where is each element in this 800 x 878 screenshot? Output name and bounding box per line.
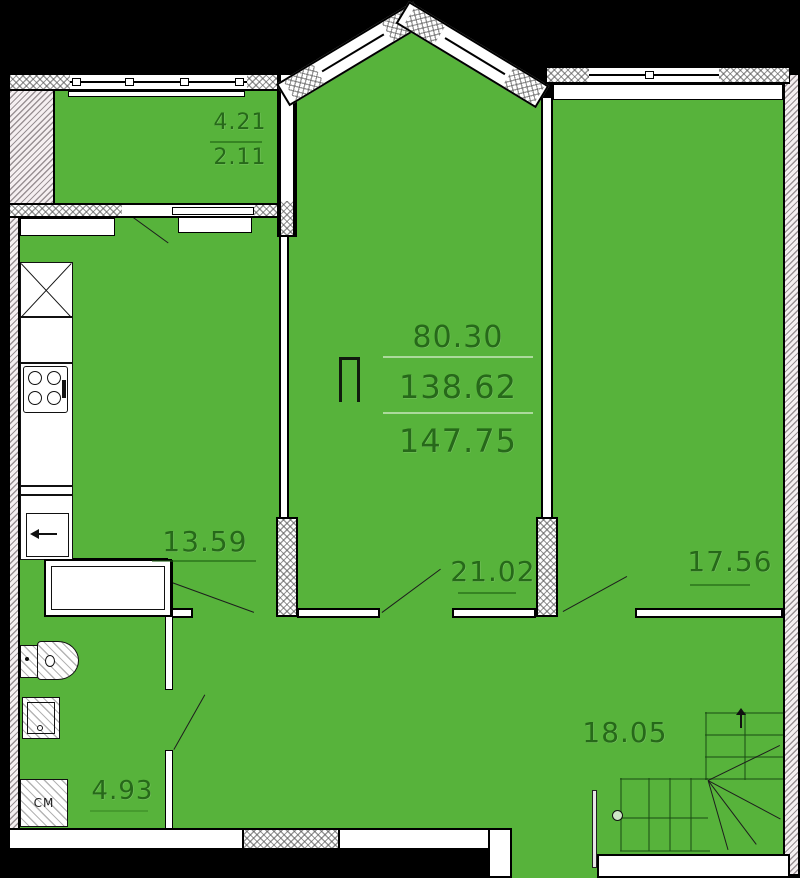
hall-area-label: 18.05 xyxy=(580,716,670,749)
counter-divider xyxy=(21,494,72,496)
kitchen-window xyxy=(172,207,254,215)
bedroom-area-label: 17.56 xyxy=(685,545,775,578)
faucet-icon xyxy=(37,533,57,535)
outer-wall-left-balcony xyxy=(8,73,55,218)
bedroom-window-wall xyxy=(545,66,790,84)
bottom-wall-right xyxy=(597,854,790,878)
balcony-window-sill xyxy=(68,91,245,97)
balcony-fraction-line xyxy=(210,141,262,143)
wall-pier xyxy=(10,75,70,89)
stove-handle xyxy=(62,380,66,398)
window-mullion xyxy=(72,78,81,86)
bathroom-area-underline xyxy=(90,810,148,812)
stair-tread xyxy=(620,778,708,780)
summary-separator xyxy=(383,356,533,358)
washbasin-icon xyxy=(22,697,60,739)
bathtub-icon xyxy=(44,559,172,617)
window-mullion xyxy=(125,78,134,86)
toilet-valve xyxy=(25,657,29,661)
wall-pier xyxy=(281,201,293,235)
kitchen-counter xyxy=(20,262,73,560)
wall-pier xyxy=(10,205,122,216)
wall-pier xyxy=(242,830,340,848)
stair-center-line xyxy=(620,817,708,819)
summary-line3: 147.75 xyxy=(383,422,533,460)
pillar-kitchen-living xyxy=(276,517,298,617)
bathroom-right-wall xyxy=(165,750,173,830)
bottom-wall-step xyxy=(488,828,512,878)
washing-machine-icon: СМ xyxy=(20,779,68,827)
living-area-underline xyxy=(458,592,516,594)
kitchen-window-board xyxy=(20,218,115,236)
kitchen-area-label: 13.59 xyxy=(150,525,260,558)
stair-tread xyxy=(620,850,710,852)
wall-pier xyxy=(254,205,279,216)
counter-divider xyxy=(21,316,72,318)
outer-wall-left xyxy=(8,216,20,850)
stair-flight-edge xyxy=(705,712,707,780)
washbasin-drain xyxy=(37,725,43,731)
stair-center-line xyxy=(744,712,746,780)
balcony-kitchen-wall xyxy=(8,203,277,218)
stove-burner xyxy=(28,371,42,385)
stair-tread xyxy=(648,778,650,851)
stair-arrow-head xyxy=(736,708,746,715)
wall-pier xyxy=(719,68,789,82)
counter-divider xyxy=(21,485,72,487)
stove-burner xyxy=(28,391,42,405)
stove-burner xyxy=(47,391,61,405)
kitchen-area-underline xyxy=(152,560,256,562)
window-mullion xyxy=(180,78,189,86)
bathroom-area-label: 4.93 xyxy=(85,776,160,806)
faucet-arrow xyxy=(30,529,39,539)
summary-line1: 80.30 xyxy=(383,320,533,355)
stove-burner xyxy=(47,371,61,385)
balcony-area-label: 4.21 xyxy=(205,110,275,135)
bedroom-area-underline xyxy=(690,584,750,586)
toilet-bowl-icon xyxy=(37,641,79,680)
summary-separator xyxy=(383,412,533,414)
toilet-flush xyxy=(45,655,55,667)
bedroom-hall-wall xyxy=(635,608,783,618)
balcony-coeff-label: 2.11 xyxy=(205,145,275,170)
summary-line2: 138.62 xyxy=(383,368,533,406)
stair-tread xyxy=(690,778,692,851)
bottom-wall-left xyxy=(8,828,498,850)
hall-wall-segment xyxy=(452,608,536,618)
pillar-living-bedroom xyxy=(536,517,558,617)
kitchen-sink-icon xyxy=(26,513,69,557)
stair-tread xyxy=(669,778,671,851)
floor-plan: СМ 4.21 2.11 13.59 21.02 17.56 18.05 4.9… xyxy=(0,0,800,878)
bedroom-window-sill xyxy=(553,84,783,100)
window-glazing-line xyxy=(70,81,248,83)
partition-living-bedroom xyxy=(541,98,553,518)
wall-pier xyxy=(547,68,589,82)
kitchen-window-frame xyxy=(178,217,252,233)
hall-wall-segment xyxy=(297,608,380,618)
bathtub-inner xyxy=(51,566,165,610)
window-glazing-line xyxy=(589,74,719,76)
counter-divider xyxy=(21,362,72,364)
partition-kitchen-living xyxy=(279,237,289,518)
summary-symbol-icon xyxy=(339,357,360,402)
window-mullion xyxy=(235,78,244,86)
living-area-label: 21.02 xyxy=(448,555,538,588)
washing-machine-label: СМ xyxy=(21,796,67,810)
outer-wall-right xyxy=(783,73,800,876)
stair-direction-arrow xyxy=(740,714,742,728)
stair-newel-post xyxy=(612,810,623,821)
balcony-window-wall xyxy=(8,73,290,91)
stove-icon xyxy=(23,366,68,413)
window-mullion xyxy=(645,71,654,79)
